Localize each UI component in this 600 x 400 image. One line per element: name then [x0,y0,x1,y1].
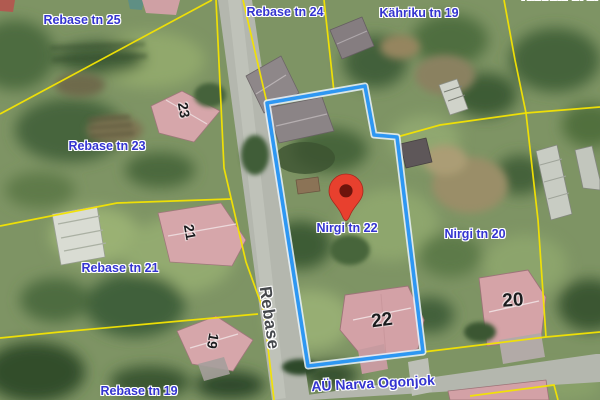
tree-blob [241,135,269,175]
shed [296,177,320,194]
address-label-nirgi-20: Nirgi tn 20 [444,227,505,241]
tree-blob [510,28,600,92]
address-label-rebase-19: Rebase tn 19 [100,384,177,398]
map-scene [0,0,600,400]
tree-blob [5,172,75,208]
soil-blob [380,35,420,59]
address-label-nirgi-22: Nirgi tn 22 [316,221,377,235]
address-label-rebase-21: Rebase tn 21 [81,261,158,275]
address-label-rebase-23: Rebase tn 23 [68,139,145,153]
tree-blob [20,278,90,322]
soil-blob [55,73,105,97]
tree-blob [330,235,370,265]
address-label-rebase-24: Rebase tn 24 [246,5,323,19]
satellite-map-canvas[interactable]: Rebase tn 25 Rebase tn 24 Kähriku tn 19 … [0,0,600,400]
roof-partial-teal [128,0,144,10]
house-number-20: 20 [502,289,525,312]
house-number-21: 21 [181,223,199,241]
house-number-22: 22 [370,309,394,334]
roof-partial-pink [142,0,180,15]
address-label-kahriku-17-partial: Kähriku tn 17 [521,0,600,3]
house-number-19: 19 [204,332,222,350]
tree-blob [275,142,335,174]
address-label-kahriku-19: Kähriku tn 19 [379,6,458,20]
tree-blob [85,273,185,337]
pin-inner-circle [339,184,352,197]
address-label-rebase-25: Rebase tn 25 [43,13,120,27]
tree-blob [125,152,195,188]
house-number-23: 23 [175,101,193,119]
roof-partial-topleft [0,0,15,12]
tree-blob [464,322,496,342]
outbuilding-dark [400,138,432,168]
